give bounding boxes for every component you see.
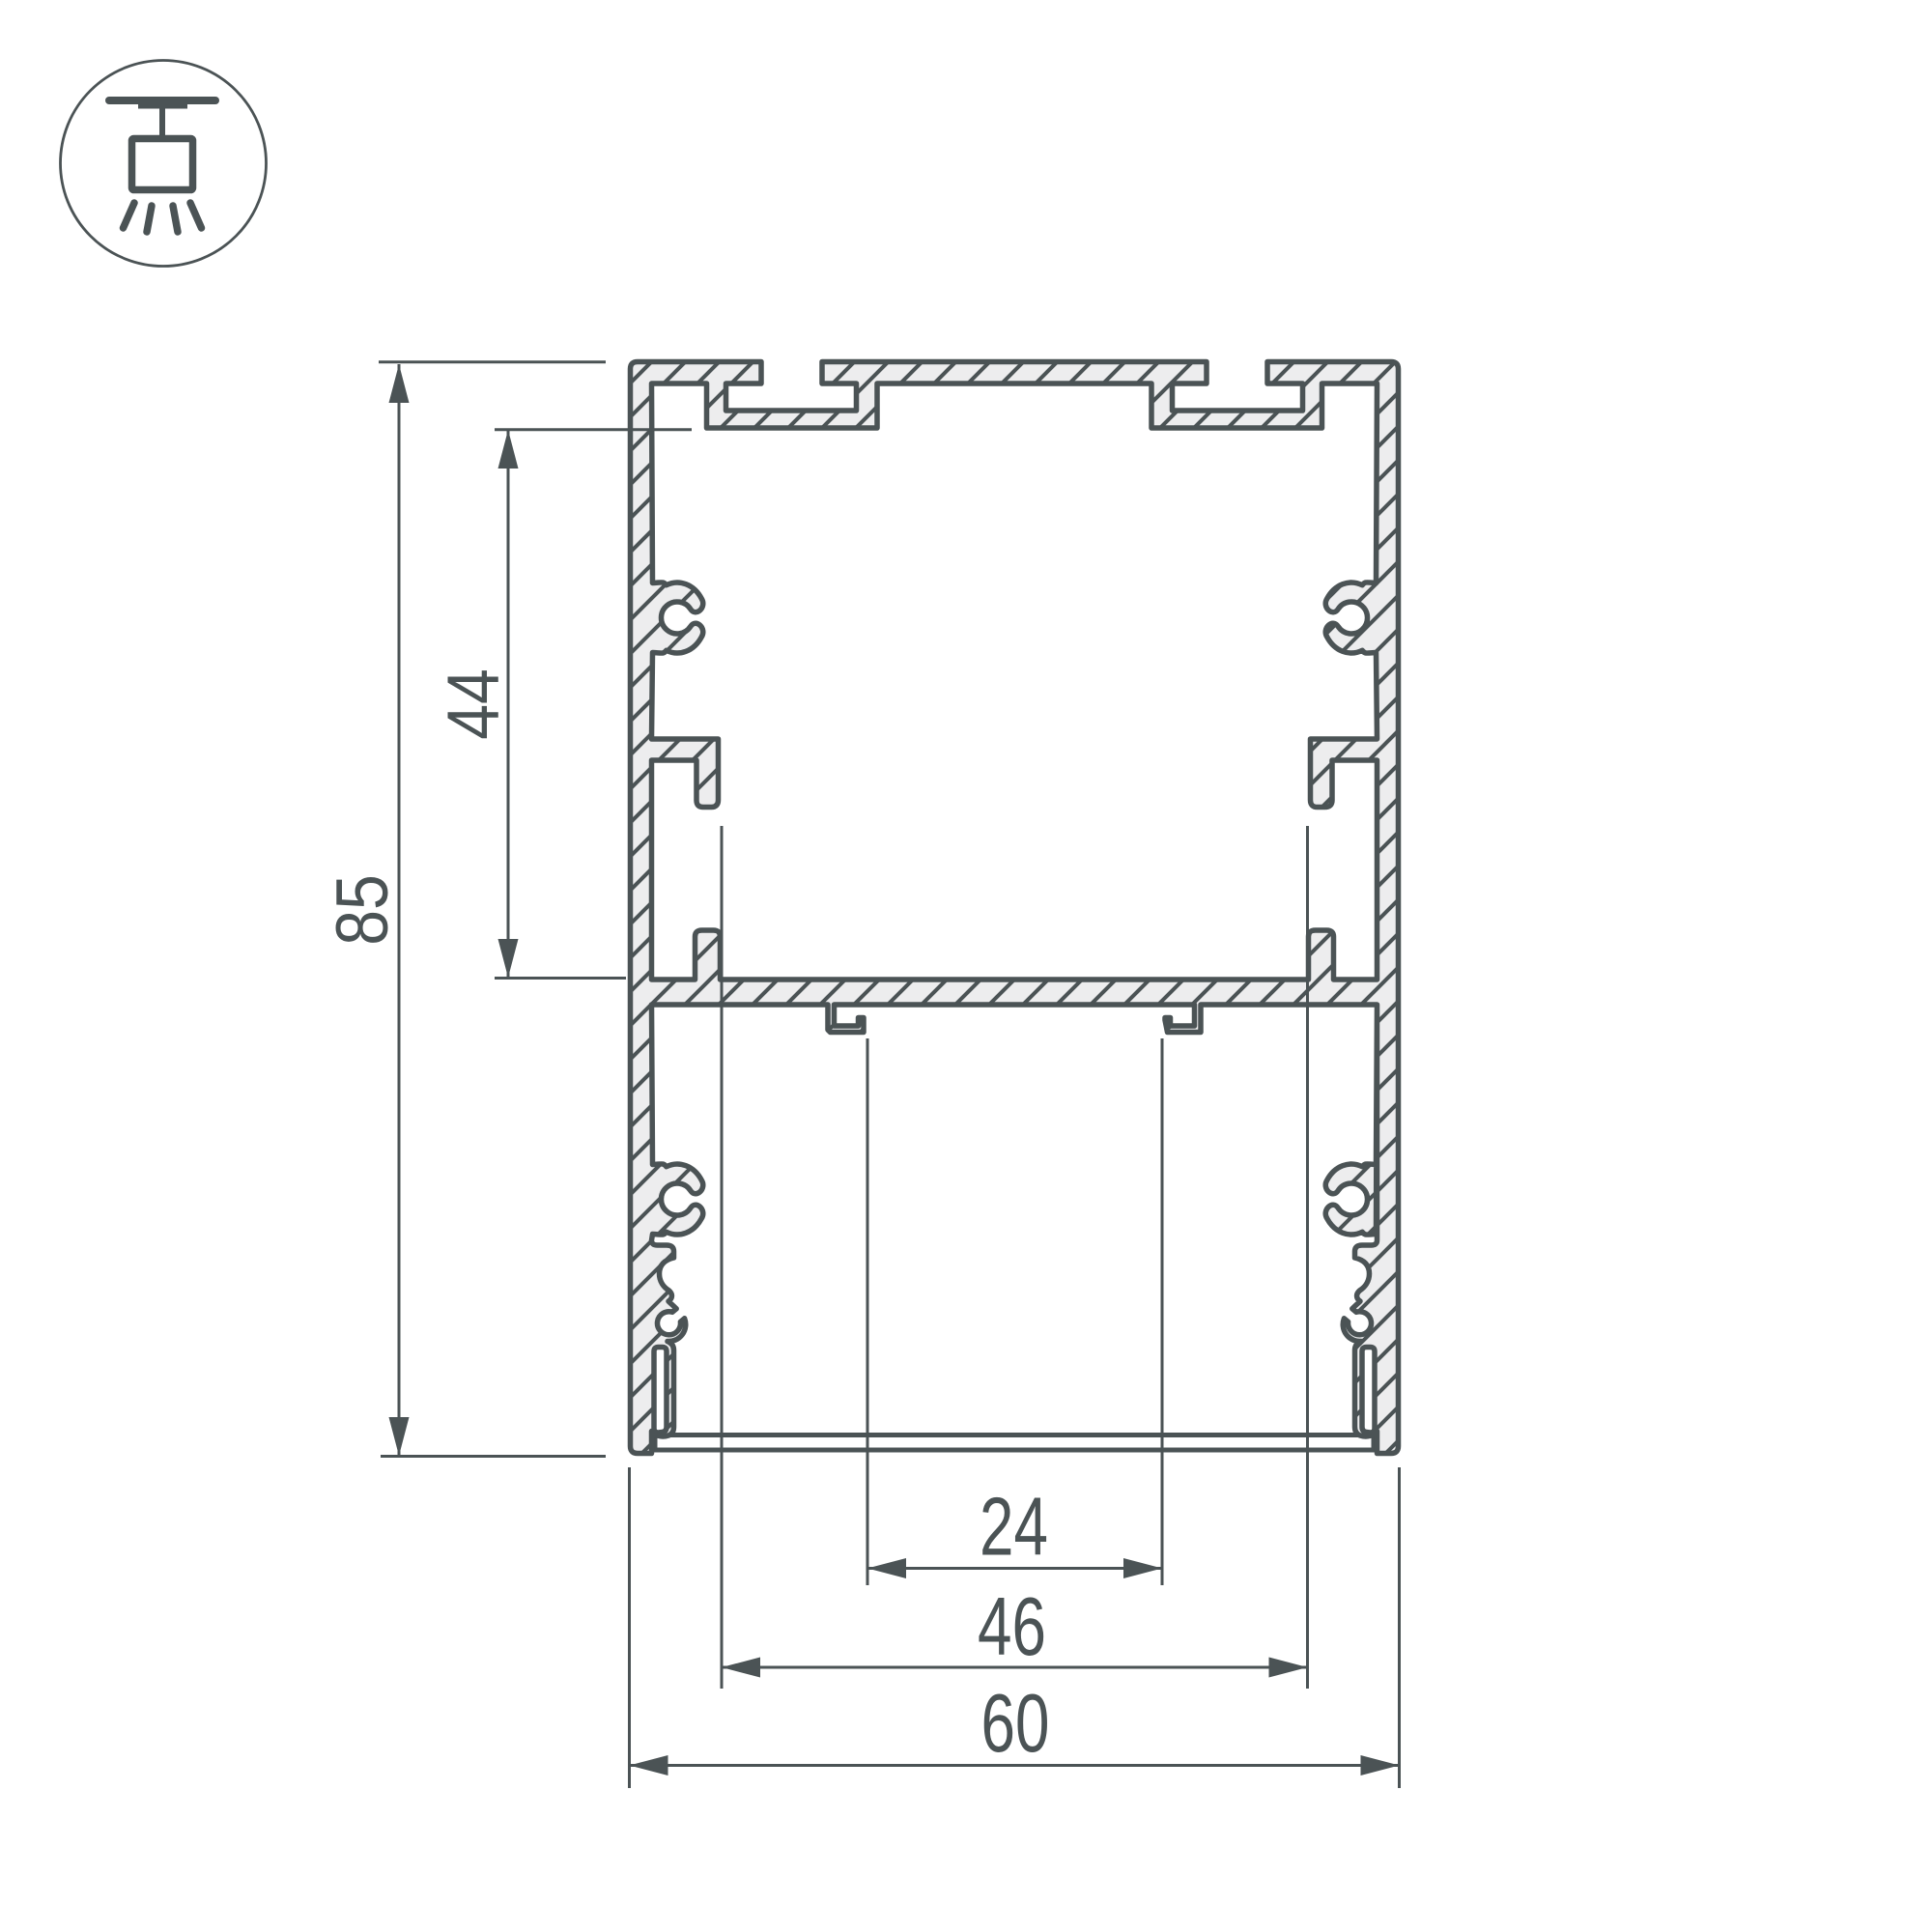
- svg-text:24: 24: [980, 1481, 1048, 1573]
- svg-text:46: 46: [978, 1580, 1046, 1672]
- svg-text:44: 44: [434, 668, 515, 740]
- svg-text:60: 60: [981, 1677, 1050, 1769]
- svg-text:85: 85: [323, 874, 404, 946]
